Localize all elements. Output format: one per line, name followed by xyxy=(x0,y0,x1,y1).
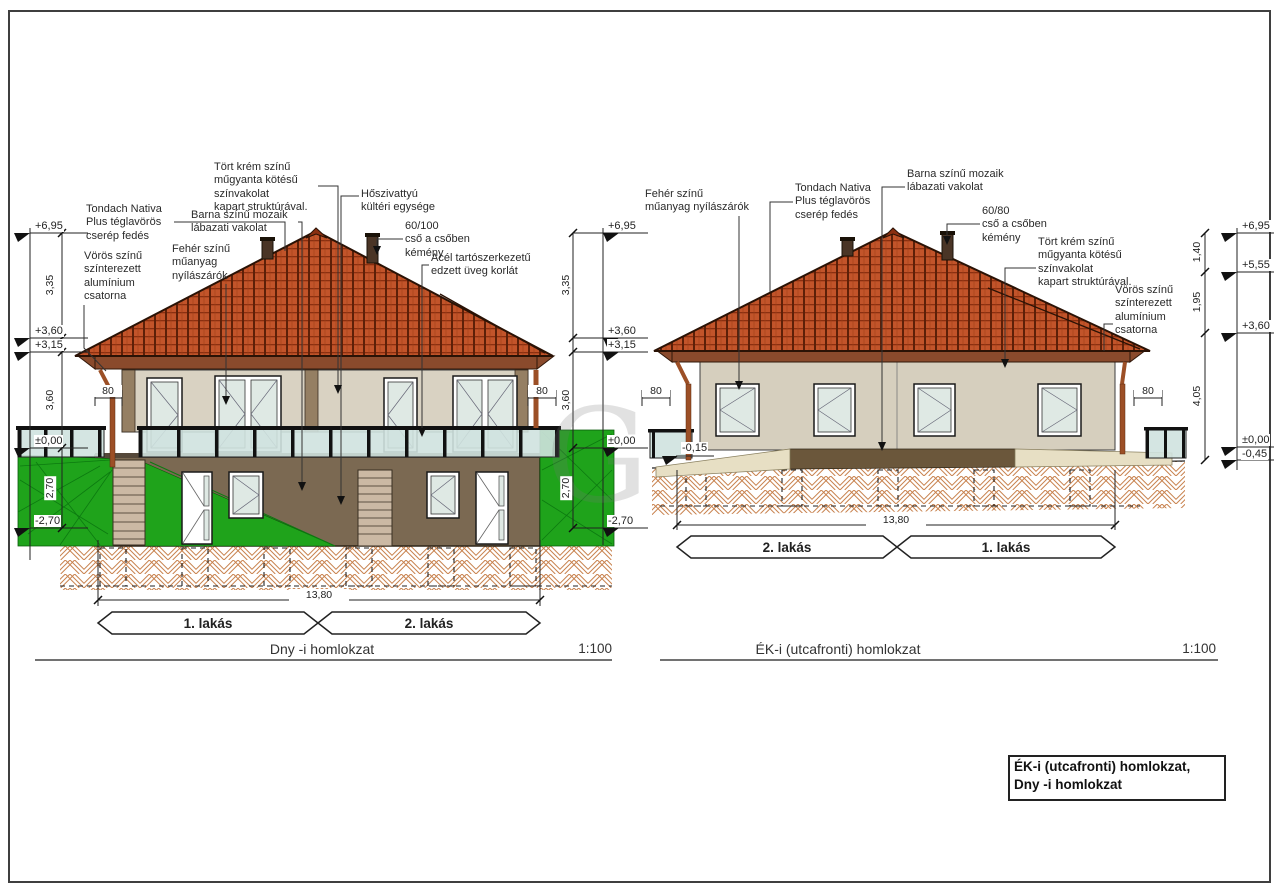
title-right-elevation: ÉK-i (utcafronti) homlokzat xyxy=(738,641,938,657)
stairs-unit2 xyxy=(358,470,392,546)
entry-door-2 xyxy=(476,472,508,544)
dim-270-left: 2,70 xyxy=(30,482,70,494)
note-gutter-left: Vörös színű színterezett alumínium csato… xyxy=(84,250,142,304)
eave-dim-left-1: 80 xyxy=(94,385,122,397)
note-wall-plaster-left: Tört krém színű műgyanta kötésű színvako… xyxy=(214,161,308,215)
eave-dim-left-2: 80 xyxy=(528,385,556,397)
roof-left-elevation xyxy=(75,228,553,356)
dim-360-left: 3,60 xyxy=(30,394,70,406)
note-plinth-left: Barna színű mozaik lábazati vakolat xyxy=(191,209,288,236)
street-window-1 xyxy=(716,384,759,436)
level-695-re: +6,95 xyxy=(1241,220,1271,232)
fascia-left xyxy=(78,356,554,369)
railing-main xyxy=(137,426,561,457)
dim-270-right: 2,70 xyxy=(546,482,586,494)
note-gutter-right: Vörös színű színterezett alumínium csato… xyxy=(1115,284,1173,338)
eave-dim-right-2: 80 xyxy=(1134,385,1162,397)
banner-unit2-left: 2. lakás xyxy=(334,615,524,633)
level-m270-right: -2,70 xyxy=(607,515,634,527)
note-roof-tiles-left: Tondach Nativa Plus téglavörös cserép fe… xyxy=(86,203,162,243)
dim-335-left: 3,35 xyxy=(30,279,70,291)
dim-405-re: 4,05 xyxy=(1177,390,1217,402)
basement-window-1 xyxy=(229,472,263,518)
note-plinth-right: Barna színű mozaik lábazati vakolat xyxy=(907,168,1004,195)
level-555-re: +5,55 xyxy=(1241,259,1271,271)
banner-unit2-right: 2. lakás xyxy=(692,539,882,557)
level-m015-re: -0,15 xyxy=(681,442,708,454)
level-360-right: +3,60 xyxy=(607,325,637,337)
width-dim-right: 13,80 xyxy=(866,514,926,526)
earth-hatch-left xyxy=(60,546,612,590)
drawing-sheet: G Tondach Nativa Plus téglavörös cserép … xyxy=(0,0,1279,892)
banner-unit1-left: 1. lakás xyxy=(113,615,303,633)
note-glass-railing: Acél tartószerkezetű edzett üveg korlát xyxy=(431,252,531,279)
chimney-1 xyxy=(260,237,275,259)
level-m270-left: -2,70 xyxy=(34,515,61,527)
level-000-left: ±0,00 xyxy=(34,435,63,447)
dim-335-right: 3,35 xyxy=(546,279,586,291)
level-695-left: +6,95 xyxy=(34,220,64,232)
note-windows-left: Fehér színű műanyag nyílászárók xyxy=(172,243,230,283)
banner-unit1-right: 1. lakás xyxy=(911,539,1101,557)
plinth-strip xyxy=(790,449,1015,469)
level-360-left: +3,60 xyxy=(34,325,64,337)
dim-195-re: 1,95 xyxy=(1177,296,1217,308)
level-695-right: +6,95 xyxy=(607,220,637,232)
chimney-3 xyxy=(840,237,855,256)
entry-door-1 xyxy=(182,472,212,544)
scale-right-elevation: 1:100 xyxy=(1178,641,1216,656)
street-window-3 xyxy=(914,384,955,436)
railing-end-right xyxy=(1144,427,1188,458)
level-m045-re: -0,45 xyxy=(1241,448,1268,460)
level-000-re: ±0,00 xyxy=(1241,434,1270,446)
note-windows-right: Fehér színű műanyag nyílászárók xyxy=(645,188,749,215)
basement-window-2 xyxy=(427,472,459,518)
street-window-4 xyxy=(1038,384,1081,436)
title-block: ÉK-i (utcafronti) homlokzat, Dny -i homl… xyxy=(1008,755,1226,801)
level-315-left: +3,15 xyxy=(34,339,64,351)
scale-left-elevation: 1:100 xyxy=(574,641,612,656)
width-dim-left: 13,80 xyxy=(289,589,349,601)
level-000-right: ±0,00 xyxy=(607,435,636,447)
stairs-unit1 xyxy=(113,460,145,545)
street-window-2 xyxy=(814,384,855,436)
eave-dim-right-1: 80 xyxy=(642,385,670,397)
level-315-right: +3,15 xyxy=(607,339,637,351)
title-left-elevation: Dny -i homlokzat xyxy=(222,641,422,657)
note-roof-tiles-right: Tondach Nativa Plus téglavörös cserép fe… xyxy=(795,182,871,222)
note-heat-pump: Hőszivattyú kültéri egysége xyxy=(361,188,435,215)
dim-140-re: 1,40 xyxy=(1177,246,1217,258)
note-wall-plaster-right: Tört krém színű műgyanta kötésű színvako… xyxy=(1038,236,1132,290)
level-360-re: +3,60 xyxy=(1241,320,1271,332)
